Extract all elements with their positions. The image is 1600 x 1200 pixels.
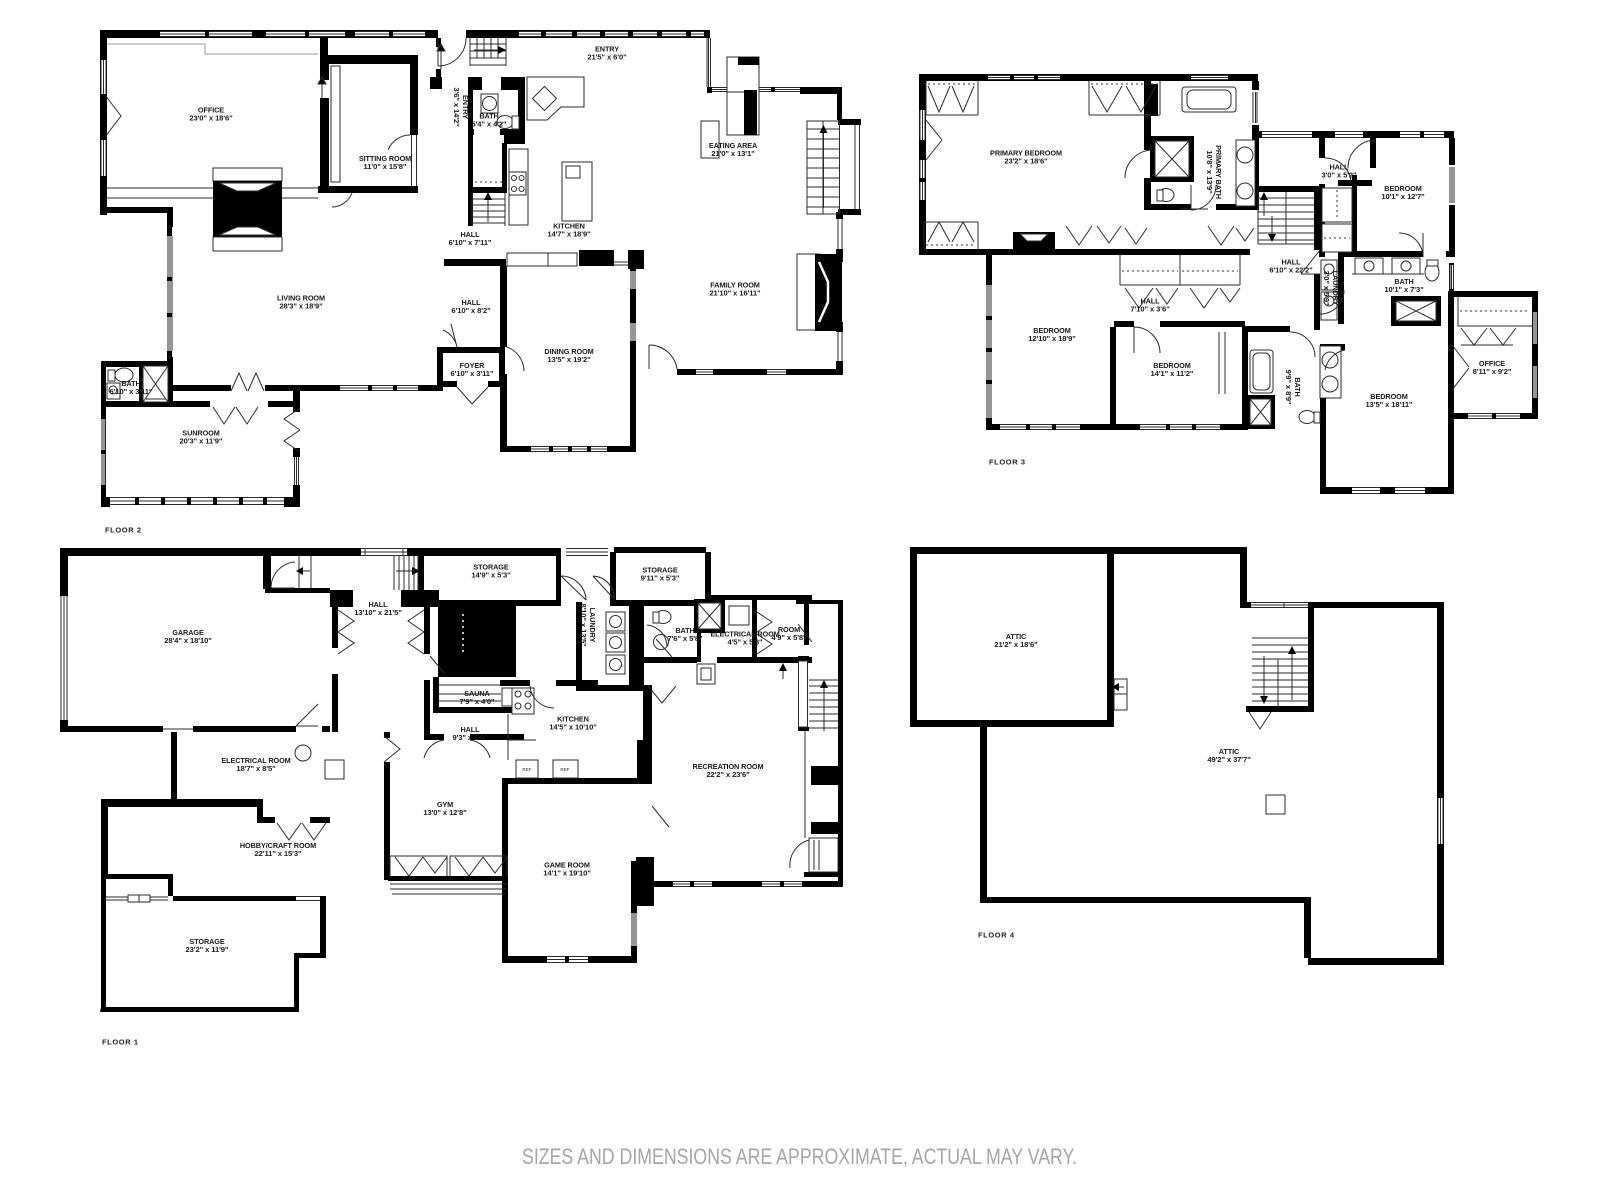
svg-text:13'10" x 21'5": 13'10" x 21'5" <box>354 608 402 617</box>
svg-text:18'7" x 8'5": 18'7" x 8'5" <box>236 764 276 773</box>
svg-text:3'0" x 5'2": 3'0" x 5'2" <box>1321 171 1357 180</box>
svg-text:3'6" x 14'2": 3'6" x 14'2" <box>452 87 461 127</box>
svg-text:21'10" x 16'11": 21'10" x 16'11" <box>709 289 761 298</box>
svg-text:6'10" x 3'11": 6'10" x 3'11" <box>110 387 153 396</box>
svg-text:6'10" x 22'2": 6'10" x 22'2" <box>1269 266 1313 275</box>
svg-text:LAUNDRY: LAUNDRY <box>588 608 597 643</box>
svg-text:10'1" x 12'7": 10'1" x 12'7" <box>1381 192 1425 201</box>
svg-text:8'10" x 13'5": 8'10" x 13'5" <box>579 603 588 647</box>
svg-text:14'9" x 5'3": 14'9" x 5'3" <box>471 571 511 580</box>
svg-text:21'0" x 13'1": 21'0" x 13'1" <box>711 149 755 158</box>
svg-text:SIZES AND DIMENSIONS ARE APPRO: SIZES AND DIMENSIONS ARE APPROXIMATE, AC… <box>522 1144 1077 1169</box>
svg-text:20'3" x 11'9": 20'3" x 11'9" <box>180 437 223 446</box>
svg-text:REF: REF <box>522 767 531 772</box>
svg-text:14'7" x 18'9": 14'7" x 18'9" <box>547 230 591 239</box>
svg-text:8'11" x 9'2": 8'11" x 9'2" <box>1473 367 1512 376</box>
svg-text:23'2" x 11'9": 23'2" x 11'9" <box>186 945 229 954</box>
svg-text:28'3" x 18'9": 28'3" x 18'9" <box>279 302 323 311</box>
svg-text:FLOOR 4: FLOOR 4 <box>978 931 1015 940</box>
svg-text:10'1" x 7'3": 10'1" x 7'3" <box>1384 285 1424 294</box>
svg-text:7'6" x 5'8": 7'6" x 5'8" <box>667 634 703 643</box>
svg-text:FLOOR 3: FLOOR 3 <box>989 458 1026 467</box>
svg-text:7'9" x 4'0": 7'9" x 4'0" <box>459 697 495 706</box>
svg-text:28'4" x 18'10": 28'4" x 18'10" <box>164 636 212 645</box>
svg-text:13'5" x 19'2": 13'5" x 19'2" <box>547 355 591 364</box>
svg-text:6'10" x 7'11": 6'10" x 7'11" <box>449 238 492 247</box>
svg-text:3'0" x 5'9": 3'0" x 5'9" <box>1322 270 1331 306</box>
svg-text:13'5" x 18'11": 13'5" x 18'11" <box>1366 400 1413 409</box>
svg-text:23'0" x 18'6": 23'0" x 18'6" <box>189 114 233 123</box>
svg-text:10'8" x 13'9": 10'8" x 13'9" <box>1205 150 1214 194</box>
svg-text:14'1" x 19'10": 14'1" x 19'10" <box>543 869 591 878</box>
svg-text:9'3" x 3'9": 9'3" x 3'9" <box>452 733 488 742</box>
svg-text:FLOOR 1: FLOOR 1 <box>102 1038 139 1047</box>
svg-text:14'1" x 11'2": 14'1" x 11'2" <box>1151 369 1194 378</box>
svg-text:9'9" x 8'9": 9'9" x 8'9" <box>1284 369 1293 405</box>
svg-text:LAUNDRY: LAUNDRY <box>1331 271 1340 306</box>
svg-text:22'2" x 23'6": 22'2" x 23'6" <box>706 770 750 779</box>
svg-text:21'5" x 6'0": 21'5" x 6'0" <box>587 53 627 62</box>
svg-text:PRIMARY BATH: PRIMARY BATH <box>1214 145 1223 199</box>
svg-text:REF: REF <box>560 767 569 772</box>
svg-text:21'2" x 18'6": 21'2" x 18'6" <box>994 640 1038 649</box>
svg-text:6'10" x 3'11": 6'10" x 3'11" <box>451 369 494 378</box>
svg-text:14'5" x 10'10": 14'5" x 10'10" <box>549 723 597 732</box>
svg-text:6'10" x 8'2": 6'10" x 8'2" <box>451 306 491 315</box>
svg-text:12'10" x 18'9": 12'10" x 18'9" <box>1028 334 1076 343</box>
svg-text:BATH: BATH <box>1293 377 1302 396</box>
svg-text:7'10" x 3'6": 7'10" x 3'6" <box>1130 305 1170 314</box>
svg-text:13'0" x 12'8": 13'0" x 12'8" <box>423 808 467 817</box>
svg-text:22'11" x 15'3": 22'11" x 15'3" <box>255 849 302 858</box>
svg-text:11'0" x 15'8": 11'0" x 15'8" <box>364 162 407 171</box>
svg-text:5'4" x 4'2": 5'4" x 4'2" <box>471 120 507 129</box>
svg-text:9'11" x 5'3": 9'11" x 5'3" <box>641 574 680 583</box>
svg-text:FLOOR 2: FLOOR 2 <box>105 526 142 535</box>
svg-text:4'5" x 5'8": 4'5" x 5'8" <box>727 638 763 647</box>
svg-text:4'9" x 5'8": 4'9" x 5'8" <box>771 633 807 642</box>
svg-text:23'2" x 18'6": 23'2" x 18'6" <box>1004 157 1048 166</box>
svg-text:49'2" x 37'7": 49'2" x 37'7" <box>1207 755 1251 764</box>
svg-text:ENTRY: ENTRY <box>461 95 470 119</box>
